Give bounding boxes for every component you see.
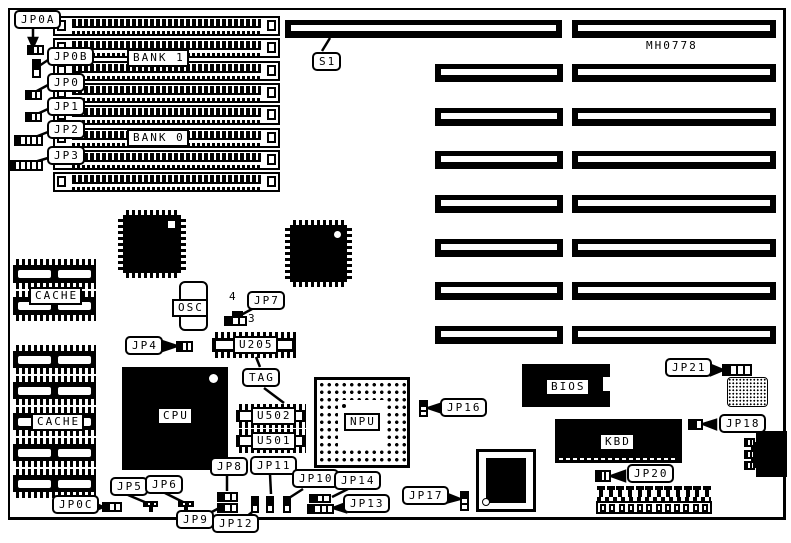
- simm-socket: [53, 16, 280, 36]
- expansion-slot: [435, 64, 563, 82]
- bank0-label: BANK 0: [127, 129, 189, 147]
- jp8-jumper: [217, 492, 238, 502]
- callout-jp3: JP3: [47, 146, 85, 165]
- simm-socket: [53, 150, 280, 170]
- jp20-jumper: [595, 470, 611, 482]
- expansion-slot: [435, 326, 563, 344]
- expansion-slot: [572, 64, 776, 82]
- callout-jp20: JP20: [627, 464, 674, 483]
- callout-jp5: JP5: [110, 477, 148, 496]
- jp10-jumper: [283, 496, 291, 513]
- callout-jp9: JP9: [176, 510, 214, 529]
- callout-jp1: JP1: [47, 97, 85, 116]
- power-connector-body: [596, 501, 712, 514]
- callout-jp0c: JP0C: [52, 495, 99, 514]
- npu-label: NPU: [344, 413, 380, 431]
- expansion-slot: [572, 20, 776, 38]
- jp7-pin3-label: 3: [248, 312, 256, 325]
- din-pin: [744, 438, 755, 447]
- jp0-jumper: [25, 90, 42, 100]
- din-pin: [744, 461, 755, 470]
- jp13-jumper: [307, 504, 334, 514]
- qfp-chip: [118, 210, 186, 278]
- callout-jp0b: JP0B: [47, 47, 94, 66]
- jp2-jumper: [14, 135, 43, 146]
- osc-label: OSC: [172, 299, 208, 317]
- callout-jp12: JP12: [212, 514, 259, 533]
- callout-jp21: JP21: [665, 358, 712, 377]
- part-number-text: MH0778: [646, 39, 698, 52]
- tag-label: TAG: [242, 368, 280, 387]
- jp18-jumper: [688, 419, 703, 430]
- jp21-jumper: [722, 364, 752, 376]
- bank1-label: BANK 1: [127, 49, 189, 67]
- kbd-label: KBD: [599, 433, 635, 451]
- callout-jp18: JP18: [719, 414, 766, 433]
- expansion-slot: [572, 151, 776, 169]
- cache-dip-chip: [13, 376, 96, 405]
- expansion-slot: [435, 282, 563, 300]
- jp7-jumper: [224, 316, 247, 326]
- expansion-slot: [435, 195, 563, 213]
- jp7-pin4-label: 4: [229, 290, 237, 303]
- jp0a-jumper: [27, 45, 44, 55]
- jp14-jumper: [309, 494, 331, 503]
- cache-dip-chip: [13, 259, 96, 289]
- plcc-chip: [476, 449, 536, 512]
- jp1-jumper: [25, 112, 42, 122]
- callout-jp17: JP17: [402, 486, 449, 505]
- callout-jp10: JP10: [292, 469, 339, 488]
- callout-jp8: JP8: [210, 457, 248, 476]
- callout-s1: S1: [312, 52, 341, 71]
- expansion-slot: [572, 108, 776, 126]
- jp9-jumper: [217, 503, 238, 513]
- expansion-slot: [572, 326, 776, 344]
- jp12-jumper: [251, 496, 259, 513]
- callout-jp11: JP11: [250, 456, 297, 475]
- callout-jp6: JP6: [145, 475, 183, 494]
- cache-upper-label: CACHE: [29, 287, 82, 305]
- simm-socket: [53, 172, 280, 192]
- cache-dip-chip: [13, 469, 96, 498]
- jp0c-jumper: [102, 502, 122, 512]
- expansion-slot: [435, 151, 563, 169]
- callout-jp4: JP4: [125, 336, 163, 355]
- cache-lower-label: CACHE: [31, 413, 84, 431]
- simm-socket: [53, 83, 280, 103]
- power-connector-pins: [597, 486, 711, 497]
- bios-label: BIOS: [545, 378, 590, 396]
- callout-jp13: JP13: [343, 494, 390, 513]
- jp11-jumper: [266, 496, 274, 513]
- keyboard-din-connector: [756, 431, 787, 477]
- expansion-slot: [572, 195, 776, 213]
- motherboard-diagram: BANK 1 BANK 0 MH0778 CACHE CACHE OSC 4 3…: [0, 0, 791, 543]
- expansion-slot: [572, 239, 776, 257]
- jp4-jumper: [176, 341, 193, 352]
- cache-dip-chip: [13, 438, 96, 467]
- jp5-jumper: [143, 501, 158, 512]
- cpu-label: CPU: [157, 407, 193, 425]
- qfp-chip: [285, 220, 352, 287]
- expansion-slot: [435, 108, 563, 126]
- u205-label: U205: [233, 336, 278, 354]
- jp0b-jumper: [32, 59, 41, 78]
- u501-label: U501: [251, 432, 296, 450]
- callout-jp16: JP16: [440, 398, 487, 417]
- expansion-slot: [572, 282, 776, 300]
- callout-jp0: JP0: [47, 73, 85, 92]
- jp3-jumper: [8, 160, 43, 171]
- jp16-jumper: [419, 400, 428, 417]
- callout-jp2: JP2: [47, 120, 85, 139]
- jp17-jumper: [460, 491, 469, 511]
- callout-jp7: JP7: [247, 291, 285, 310]
- callout-jp0a: JP0A: [14, 10, 61, 29]
- thermal-pad: [727, 377, 768, 407]
- expansion-slot: [435, 239, 563, 257]
- din-pin: [744, 450, 755, 459]
- simm-socket: [53, 105, 280, 125]
- cache-dip-chip: [13, 345, 96, 374]
- callout-jp14: JP14: [334, 471, 381, 490]
- u502-label: U502: [251, 407, 296, 425]
- expansion-slot-s1: [285, 20, 562, 38]
